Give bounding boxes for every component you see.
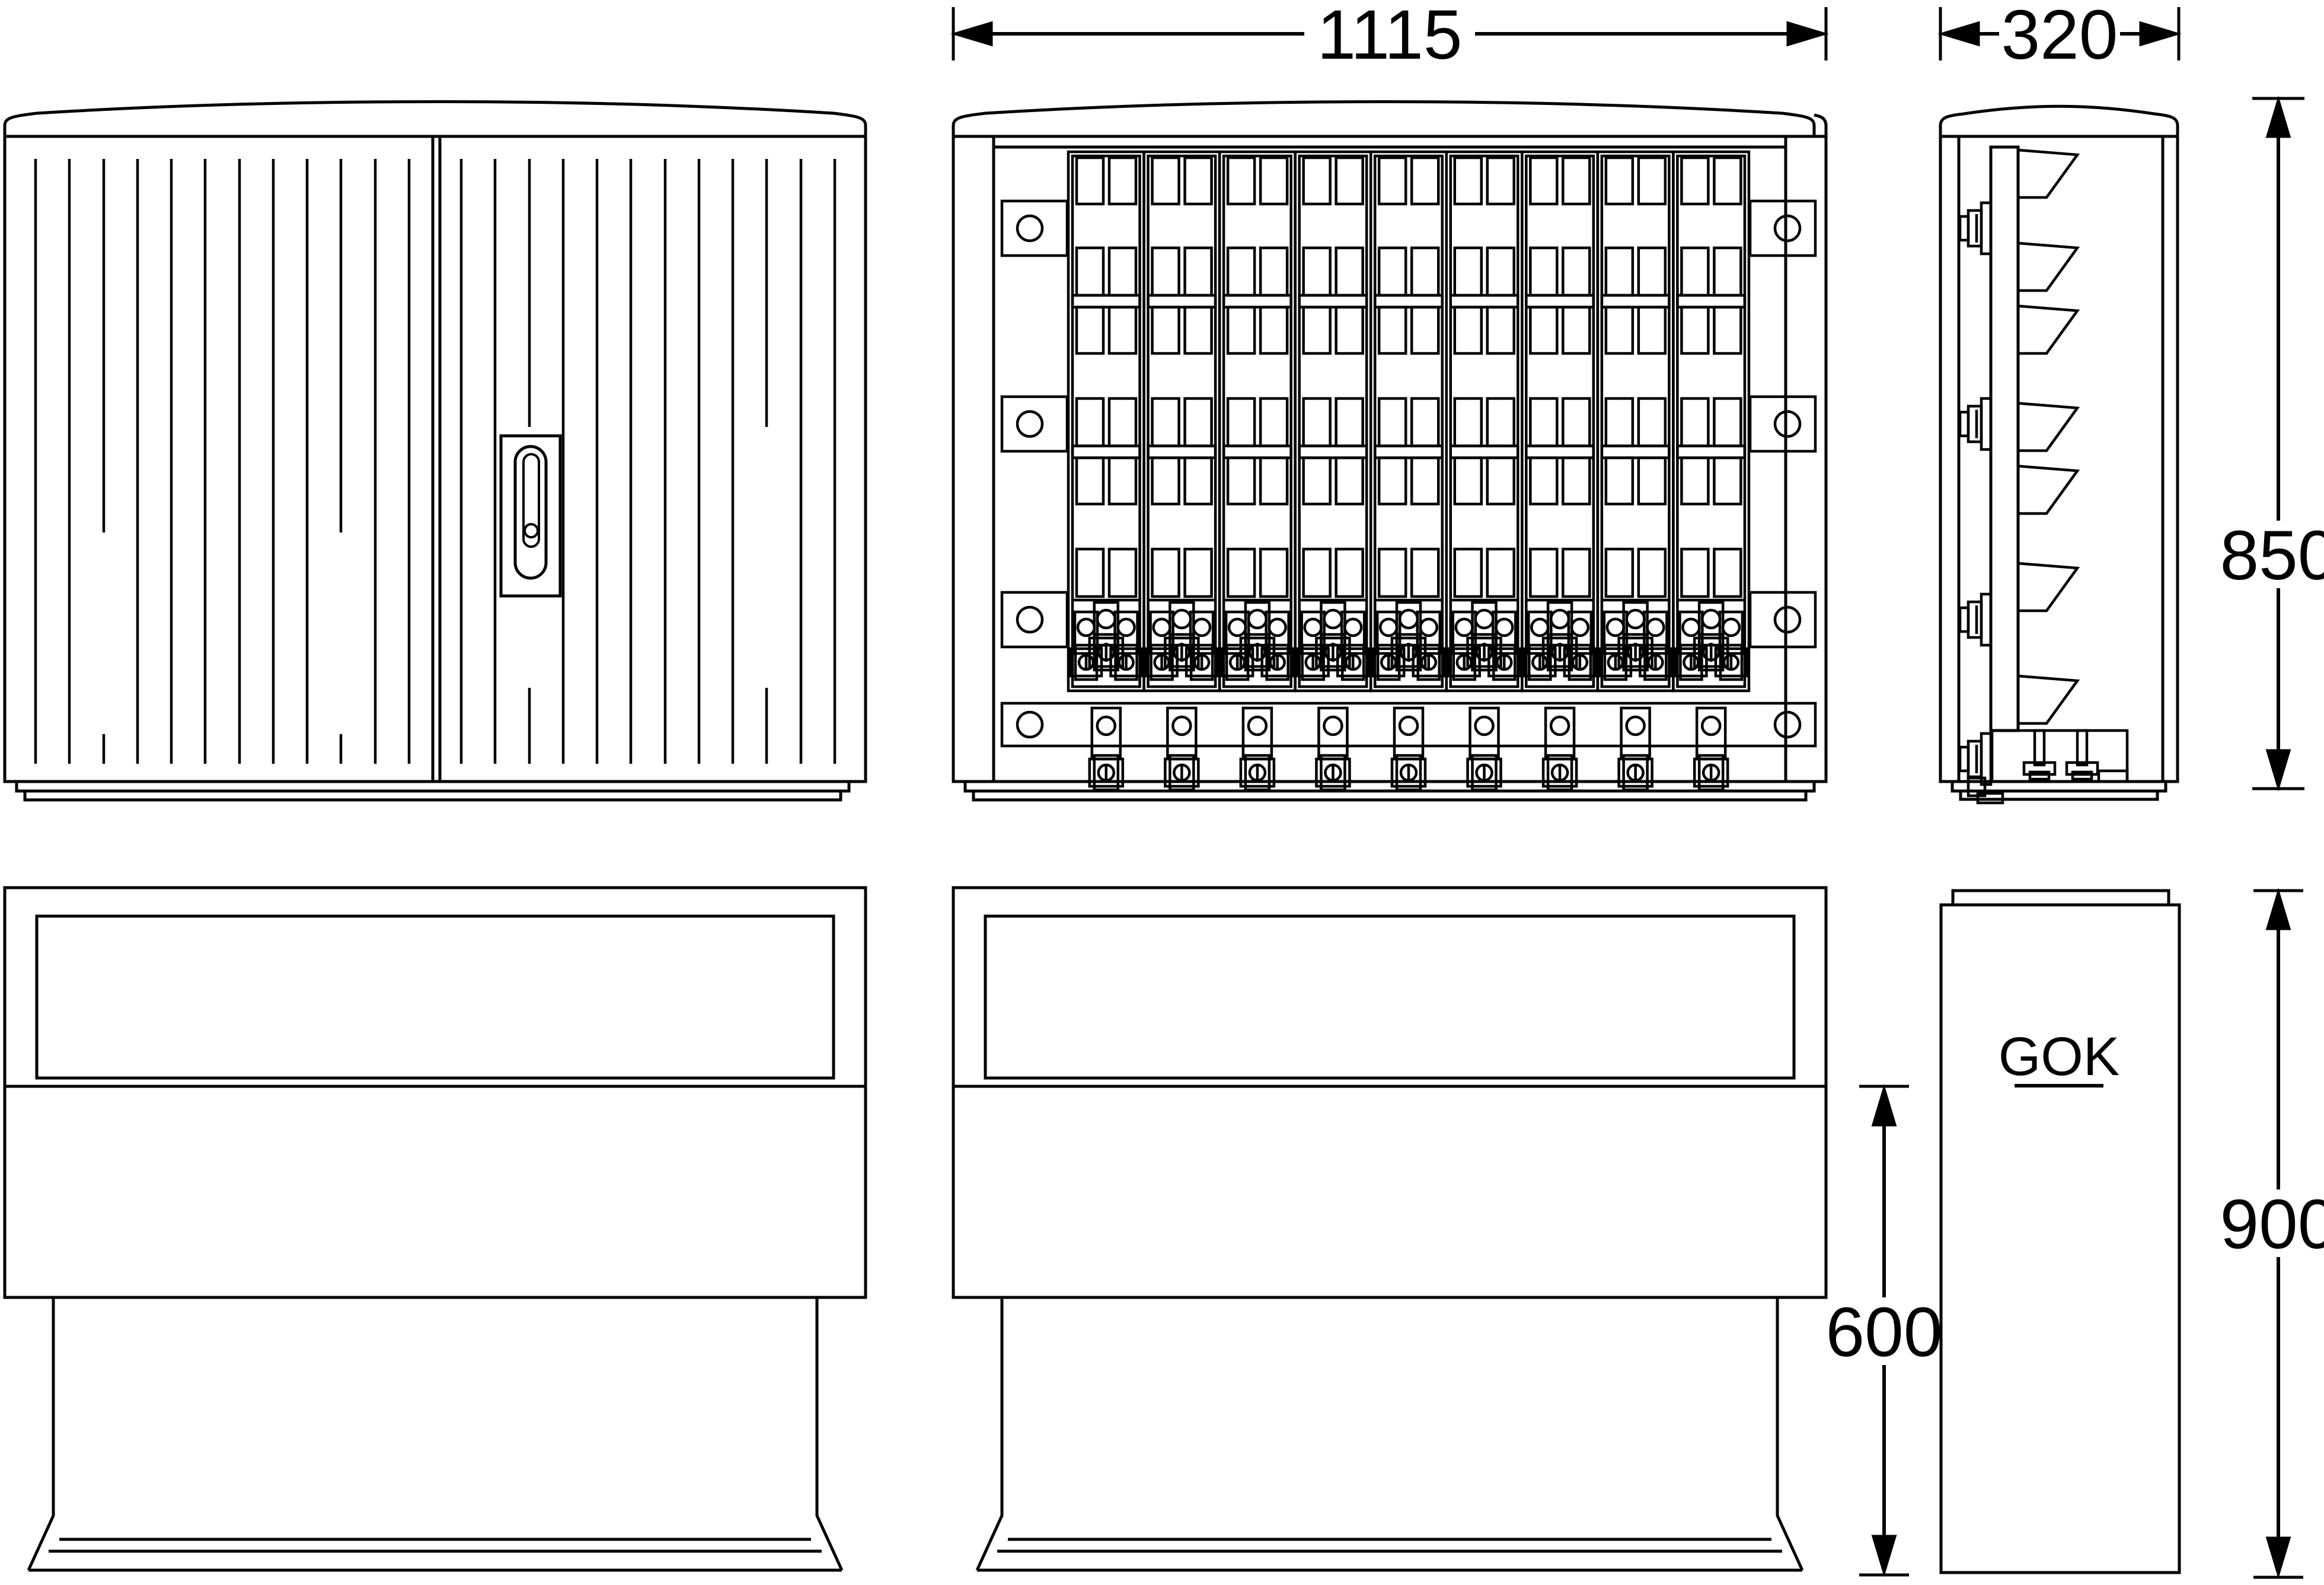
fuse-window bbox=[1109, 549, 1136, 597]
clamp-hole bbox=[1173, 717, 1190, 735]
strip-band bbox=[1072, 295, 1140, 307]
arrow-down-icon bbox=[2268, 751, 2289, 786]
dim-value-front-width: 1115 bbox=[1317, 0, 1463, 74]
fuse-window bbox=[1487, 458, 1514, 504]
bolt-nut bbox=[1968, 741, 1981, 777]
cable-clamp bbox=[1392, 708, 1425, 790]
fuse-window bbox=[1455, 549, 1482, 597]
terminal-hole bbox=[1627, 610, 1645, 628]
bolt-assembly bbox=[1960, 203, 1991, 254]
fuse-strip-profiles bbox=[2018, 150, 2077, 723]
fuse-window bbox=[1336, 307, 1363, 353]
clamp-hole bbox=[1324, 717, 1342, 735]
fuse-window bbox=[1487, 398, 1514, 446]
view-front-open bbox=[953, 102, 1826, 801]
fuse-window bbox=[1228, 248, 1254, 295]
dimension-front-width: 1115 bbox=[953, 0, 1826, 74]
fuse-window bbox=[1185, 398, 1212, 446]
terminal-hole bbox=[1173, 610, 1190, 628]
fuse-window bbox=[1304, 458, 1330, 504]
strip-profile bbox=[2018, 676, 2077, 723]
terminal-hole bbox=[1400, 610, 1418, 628]
clamp-hole bbox=[1249, 717, 1266, 735]
terminal-hole bbox=[1723, 619, 1739, 636]
fuse-strip bbox=[1371, 152, 1447, 691]
busbar-support-rail bbox=[1991, 147, 2018, 731]
wall-bolts bbox=[1960, 203, 2003, 803]
fuse-window bbox=[1530, 398, 1557, 446]
fuse-window bbox=[1109, 307, 1136, 353]
fuse-window bbox=[1304, 549, 1330, 597]
strip-inner bbox=[1148, 156, 1216, 687]
fuse-window bbox=[1714, 398, 1741, 446]
arrow-up-icon bbox=[2268, 101, 2289, 136]
fuse-window bbox=[1563, 158, 1589, 204]
view-base-front bbox=[5, 888, 866, 1570]
strip-band bbox=[1224, 446, 1291, 458]
fuse-window bbox=[1714, 248, 1741, 295]
fuse-window bbox=[1260, 248, 1287, 295]
terminal-hole bbox=[1420, 619, 1437, 636]
fuse-window bbox=[1077, 307, 1103, 353]
clamp-stem bbox=[2077, 731, 2087, 765]
fuse-window bbox=[1639, 248, 1665, 295]
foundation-outline bbox=[977, 1297, 1802, 1570]
bolt-nut bbox=[1968, 211, 1981, 246]
cable-clamp bbox=[1316, 708, 1349, 790]
terminal-hole bbox=[1456, 619, 1473, 636]
fuse-window bbox=[1260, 549, 1287, 597]
fuse-strip bbox=[1447, 152, 1522, 691]
cable-clamp bbox=[1165, 708, 1198, 790]
fuse-window bbox=[1336, 398, 1363, 446]
fuse-window bbox=[1412, 458, 1438, 504]
fuse-window bbox=[1379, 158, 1406, 204]
fuse-window bbox=[1530, 458, 1557, 504]
fuse-window bbox=[1153, 307, 1179, 353]
fuse-window bbox=[1109, 248, 1136, 295]
fuse-window bbox=[1260, 398, 1287, 446]
fuse-window bbox=[1606, 307, 1633, 353]
fuse-window bbox=[1455, 248, 1482, 295]
fuse-window bbox=[1563, 307, 1589, 353]
terminal-hole bbox=[1193, 619, 1210, 636]
fuse-window bbox=[1228, 458, 1254, 504]
fuse-window bbox=[1260, 307, 1287, 353]
clamp-hole bbox=[1400, 717, 1418, 735]
terminal-hole bbox=[1607, 619, 1624, 636]
rail-hole bbox=[1775, 712, 1800, 737]
fuse-window bbox=[1304, 158, 1330, 204]
strip-inner bbox=[1602, 156, 1669, 687]
terminal-hole bbox=[1249, 610, 1266, 628]
strip-band bbox=[1451, 446, 1518, 458]
fuse-window bbox=[1109, 158, 1136, 204]
fuse-window bbox=[1681, 248, 1708, 295]
fuse-window bbox=[1681, 307, 1708, 353]
fuse-window bbox=[1153, 458, 1179, 504]
fuse-strip bbox=[1144, 152, 1220, 691]
clamp-hole bbox=[1097, 717, 1115, 735]
clamp-stem bbox=[2035, 731, 2044, 765]
fuse-window bbox=[1228, 307, 1254, 353]
cable-clamp bbox=[1468, 708, 1501, 790]
terminal-hole bbox=[1345, 619, 1361, 636]
plinth-step-2 bbox=[973, 791, 1806, 800]
strip-band bbox=[1375, 295, 1442, 307]
cabinet-body bbox=[5, 136, 866, 782]
strip-band bbox=[1526, 295, 1594, 307]
fuse-window bbox=[1260, 458, 1287, 504]
strip-profile bbox=[2018, 243, 2077, 291]
cable-clamp bbox=[1090, 708, 1123, 790]
fuse-window bbox=[1412, 158, 1438, 204]
strip-band bbox=[1451, 295, 1518, 307]
mount-tab-left bbox=[1002, 592, 1067, 647]
handle-plate[interactable] bbox=[501, 436, 560, 596]
strip-profile bbox=[2018, 563, 2077, 611]
arrow-right-icon bbox=[1788, 23, 1824, 44]
arrow-up-icon bbox=[1873, 1089, 1895, 1125]
dimension-body-height: 850 bbox=[2220, 98, 2324, 789]
fuse-window bbox=[1336, 549, 1363, 597]
strip-inner bbox=[1300, 156, 1367, 687]
strip-inner bbox=[1451, 156, 1518, 687]
fuse-strip bbox=[1295, 152, 1371, 691]
strip-inner bbox=[1677, 156, 1745, 687]
fuse-window bbox=[1714, 458, 1741, 504]
base-side-body bbox=[1941, 905, 2179, 1573]
terminal-hole bbox=[1229, 619, 1246, 636]
dim-value-base-total: 900 bbox=[2220, 1185, 2324, 1264]
terminal-box bbox=[1992, 731, 2127, 782]
plinth-step-2 bbox=[25, 791, 841, 800]
fuse-window bbox=[1487, 549, 1514, 597]
fuse-window bbox=[1530, 248, 1557, 295]
fuse-window bbox=[1304, 248, 1330, 295]
bottom-cable-rail bbox=[1002, 703, 1815, 790]
arrow-down-icon bbox=[2268, 1538, 2289, 1574]
fuse-window bbox=[1606, 458, 1633, 504]
terminal-hole bbox=[1380, 619, 1397, 636]
fuse-strip bbox=[1673, 152, 1749, 691]
clamp-hole bbox=[1627, 717, 1645, 735]
fuse-window bbox=[1077, 398, 1103, 446]
fuse-strip bbox=[1220, 152, 1295, 691]
bolt-nut bbox=[1968, 602, 1981, 637]
fuse-window bbox=[1077, 248, 1103, 295]
fuse-window bbox=[1336, 458, 1363, 504]
fuse-window bbox=[1563, 458, 1589, 504]
clamp-hole bbox=[1551, 717, 1569, 735]
fuse-window bbox=[1639, 398, 1665, 446]
mount-tab-right bbox=[1750, 397, 1815, 451]
fuse-window bbox=[1304, 307, 1330, 353]
mount-hole bbox=[1775, 216, 1800, 241]
fuse-window bbox=[1412, 398, 1438, 446]
cable-clamp bbox=[1619, 708, 1652, 790]
mount-tab-left bbox=[1002, 201, 1067, 256]
fuse-window bbox=[1714, 307, 1741, 353]
mount-tab-right bbox=[1750, 592, 1815, 647]
rail-hole bbox=[1017, 712, 1042, 737]
fuse-window bbox=[1606, 398, 1633, 446]
fuse-window bbox=[1336, 158, 1363, 204]
label-window bbox=[985, 916, 1794, 1078]
fuse-window bbox=[1714, 549, 1741, 597]
bolt-assembly bbox=[1960, 594, 1991, 645]
strip-band bbox=[1602, 295, 1669, 307]
fuse-window bbox=[1487, 248, 1514, 295]
terminal-hole bbox=[1551, 610, 1569, 628]
fuse-window bbox=[1109, 398, 1136, 446]
side-mount-tabs bbox=[1002, 201, 1815, 647]
strip-band bbox=[1677, 295, 1745, 307]
strip-band bbox=[1300, 446, 1367, 458]
roof-outline bbox=[953, 102, 1826, 137]
strip-band bbox=[1677, 446, 1745, 458]
terminal-hole bbox=[1097, 610, 1115, 628]
box-clamps bbox=[2024, 731, 2098, 779]
foundation-outline bbox=[28, 1297, 842, 1570]
fuse-window bbox=[1530, 307, 1557, 353]
fuse-window bbox=[1379, 458, 1406, 504]
terminal-hole bbox=[1476, 610, 1493, 628]
fuse-window bbox=[1563, 248, 1589, 295]
fuse-window bbox=[1606, 158, 1633, 204]
terminal-hole bbox=[1305, 619, 1321, 636]
strip-profile bbox=[2018, 403, 2077, 451]
fuse-window bbox=[1681, 398, 1708, 446]
strip-profile bbox=[2018, 306, 2077, 353]
mount-hole bbox=[1017, 412, 1042, 436]
clamp-hole bbox=[1476, 717, 1493, 735]
arrow-down-icon bbox=[1873, 1536, 1895, 1572]
arrow-up-icon bbox=[2268, 893, 2289, 929]
door-grooves-left bbox=[36, 159, 409, 764]
terminal-hole bbox=[1647, 619, 1664, 636]
fuse-strip bbox=[1068, 152, 1144, 691]
fuse-window bbox=[1455, 158, 1482, 204]
fuse-strip bbox=[1598, 152, 1674, 691]
strip-profile bbox=[2018, 466, 2077, 514]
terminal-hole bbox=[1496, 619, 1512, 636]
fuse-window bbox=[1077, 458, 1103, 504]
fuse-window bbox=[1077, 158, 1103, 204]
fuse-window bbox=[1412, 549, 1438, 597]
fuse-window bbox=[1336, 248, 1363, 295]
fuse-window bbox=[1639, 158, 1665, 204]
fuse-window bbox=[1185, 158, 1212, 204]
fuse-window bbox=[1487, 158, 1514, 204]
strip-inner bbox=[1072, 156, 1140, 687]
cable-clamp bbox=[1241, 708, 1274, 790]
fuse-window bbox=[1185, 307, 1212, 353]
label-window bbox=[37, 916, 834, 1078]
fuse-window bbox=[1455, 307, 1482, 353]
fuse-window bbox=[1153, 158, 1179, 204]
fuse-window bbox=[1228, 398, 1254, 446]
fuse-window bbox=[1487, 307, 1514, 353]
fuse-window bbox=[1077, 549, 1103, 597]
dimension-base-total-height: 900 bbox=[2220, 891, 2324, 1577]
fuse-window bbox=[1228, 549, 1254, 597]
fuse-window bbox=[1228, 158, 1254, 204]
strip-band bbox=[1602, 446, 1669, 458]
fuse-window bbox=[1379, 248, 1406, 295]
mount-hole bbox=[1017, 216, 1042, 241]
view-base-side: GOK bbox=[1941, 891, 2179, 1573]
fuse-window bbox=[1153, 398, 1179, 446]
rail-bar bbox=[1002, 703, 1815, 746]
arrow-left-icon bbox=[956, 23, 991, 44]
fuse-window bbox=[1379, 307, 1406, 353]
roof-outline bbox=[5, 102, 866, 137]
dim-value-base-exposed: 600 bbox=[1826, 1293, 1943, 1372]
mount-hole bbox=[1775, 607, 1800, 632]
strip-inner bbox=[1224, 156, 1291, 687]
terminal-hole bbox=[1118, 619, 1135, 636]
fuse-window bbox=[1379, 398, 1406, 446]
fuse-window bbox=[1530, 158, 1557, 204]
fuse-window bbox=[1379, 549, 1406, 597]
terminal-hole bbox=[1154, 619, 1170, 636]
terminal-hole bbox=[1572, 619, 1588, 636]
ground-level-label: GOK bbox=[1999, 1026, 2119, 1087]
fuse-window bbox=[1639, 549, 1665, 597]
view-side bbox=[1940, 106, 2178, 803]
fuse-window bbox=[1455, 458, 1482, 504]
strip-band bbox=[1300, 295, 1367, 307]
fuse-window bbox=[1153, 248, 1179, 295]
fuse-window bbox=[1681, 549, 1708, 597]
strip-profile bbox=[2018, 150, 2077, 197]
fuse-window bbox=[1606, 248, 1633, 295]
fuse-window bbox=[1681, 458, 1708, 504]
fuse-window bbox=[1455, 398, 1482, 446]
dimension-base-exposed-height: 600 bbox=[1826, 1086, 1943, 1575]
fuse-window bbox=[1563, 398, 1589, 446]
fuse-window bbox=[1260, 158, 1287, 204]
fuse-window bbox=[1639, 307, 1665, 353]
fuse-window bbox=[1412, 307, 1438, 353]
bolt-nut bbox=[1968, 406, 1981, 442]
cable-clamp bbox=[1543, 708, 1576, 790]
strip-band bbox=[1148, 295, 1216, 307]
fuse-window bbox=[1714, 158, 1741, 204]
fuse-window bbox=[1109, 458, 1136, 504]
fuse-window bbox=[1185, 458, 1212, 504]
fuse-window bbox=[1681, 158, 1708, 204]
dimension-depth: 320 bbox=[1940, 0, 2179, 74]
mount-tab-left bbox=[1002, 397, 1067, 451]
fuse-window bbox=[1412, 248, 1438, 295]
clamp-hole bbox=[1702, 717, 1720, 735]
view-base-front-dim bbox=[953, 888, 1826, 1570]
roof-outline bbox=[1940, 106, 2178, 136]
view-front-closed bbox=[5, 102, 866, 801]
fuse-window bbox=[1185, 549, 1212, 597]
fuse-window bbox=[1185, 248, 1212, 295]
strip-band bbox=[1375, 446, 1442, 458]
fuse-strip bbox=[1522, 152, 1598, 691]
terminal-hole bbox=[1078, 619, 1094, 636]
dim-value-body-height: 850 bbox=[2220, 516, 2324, 595]
fuse-window bbox=[1563, 549, 1589, 597]
fuse-window bbox=[1153, 549, 1179, 597]
fuse-strips bbox=[1068, 152, 1749, 691]
terminal-hole bbox=[1683, 619, 1699, 636]
base-upper-body bbox=[953, 888, 1826, 1297]
cable-clamp bbox=[1694, 708, 1728, 790]
top-lip bbox=[1953, 891, 2169, 905]
base-upper-body bbox=[5, 888, 866, 1297]
strip-inner bbox=[1375, 156, 1442, 687]
door-handle[interactable] bbox=[501, 436, 560, 596]
strip-band bbox=[1526, 446, 1594, 458]
fuse-window bbox=[1606, 549, 1633, 597]
terminal-hole bbox=[1324, 610, 1342, 628]
terminal-box-notch bbox=[2099, 771, 2127, 782]
mount-hole bbox=[1017, 607, 1042, 632]
technical-drawing-page: GOK 1115 320 bbox=[0, 0, 2324, 1585]
arrow-right-icon bbox=[2141, 23, 2176, 44]
technical-drawing: GOK 1115 320 bbox=[0, 0, 2324, 1585]
terminal-hole bbox=[1269, 619, 1286, 636]
strip-band bbox=[1072, 446, 1140, 458]
strip-inner bbox=[1526, 156, 1594, 687]
terminal-hole bbox=[1531, 619, 1548, 636]
strip-band bbox=[1224, 295, 1291, 307]
terminal-hole bbox=[1702, 610, 1720, 628]
dim-value-depth: 320 bbox=[2001, 0, 2118, 74]
cable-terminal-box bbox=[1992, 731, 2127, 782]
fuse-window bbox=[1530, 549, 1557, 597]
strip-band bbox=[1148, 446, 1216, 458]
mount-hole bbox=[1775, 412, 1800, 436]
mount-tab-right bbox=[1750, 201, 1815, 256]
bolt-assembly bbox=[1960, 398, 1991, 449]
fuse-window bbox=[1304, 398, 1330, 446]
arrow-left-icon bbox=[1943, 23, 1978, 44]
fuse-window bbox=[1639, 458, 1665, 504]
